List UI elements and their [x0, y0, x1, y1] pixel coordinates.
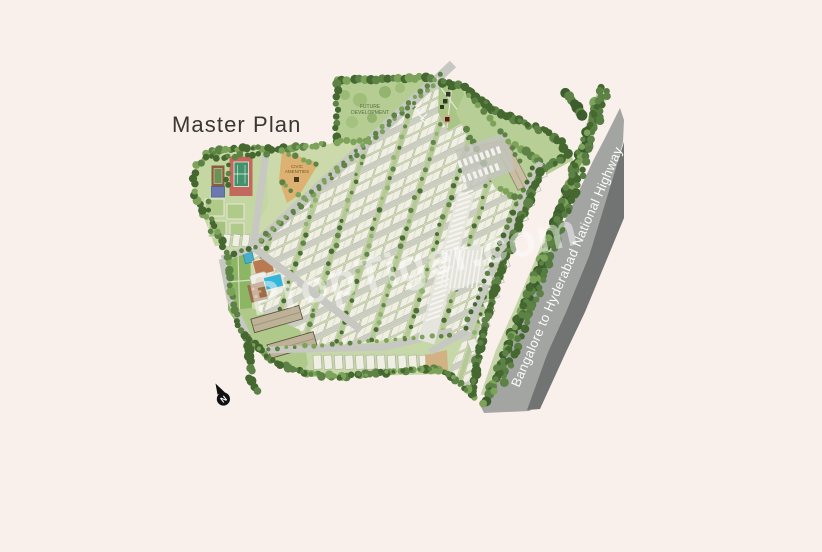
- svg-text:DEVELOPMENT: DEVELOPMENT: [351, 110, 389, 116]
- svg-text:Master Plan: Master Plan: [172, 112, 301, 137]
- svg-text:AMENITIES: AMENITIES: [285, 169, 309, 174]
